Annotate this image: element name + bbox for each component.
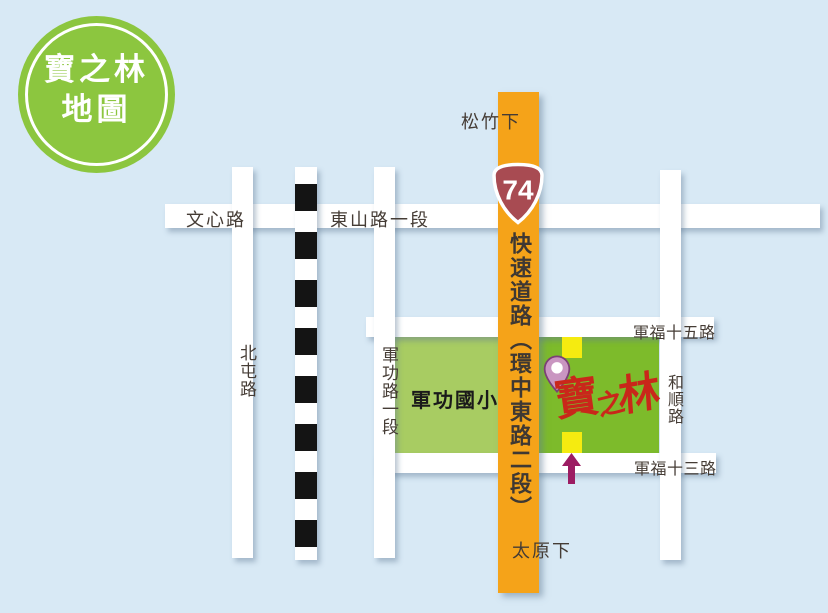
expressway-name-label: 快速道路（環中東路二段） bbox=[508, 232, 530, 520]
label-wenxin-rd: 文心路 bbox=[186, 206, 246, 232]
direction-arrow-icon bbox=[562, 453, 581, 484]
shield-number: 74 bbox=[502, 175, 534, 206]
badge-title-line1: 寶之林 bbox=[18, 50, 175, 90]
railway-track bbox=[295, 167, 317, 560]
label-heshun-rd: 和順路 bbox=[661, 374, 685, 425]
label-beitun-rd: 北屯路 bbox=[234, 344, 259, 398]
entrance-mark-south bbox=[562, 432, 582, 453]
road-heshun bbox=[660, 170, 681, 560]
logo-char-3: 林 bbox=[616, 356, 662, 424]
label-dongshan-rd-sec1: 東山路一段 bbox=[330, 206, 430, 232]
map-canvas: 快速道路（環中東路二段） 74 寶 之 林 文心路 東山路一段 松竹下 太原下 … bbox=[0, 0, 828, 613]
title-badge: 寶之林 地圖 bbox=[18, 16, 175, 173]
label-junfu-15-rd: 軍福十五路 bbox=[633, 319, 716, 343]
badge-title: 寶之林 地圖 bbox=[18, 50, 175, 130]
label-junfu-13-rd: 軍福十三路 bbox=[634, 455, 717, 479]
label-school: 軍功國小 bbox=[411, 384, 499, 413]
store-logo: 寶 之 林 bbox=[552, 356, 666, 430]
label-jungong-rd-sec1: 軍功路一段 bbox=[376, 346, 401, 436]
badge-title-line2: 地圖 bbox=[18, 90, 175, 130]
highway-74-shield-icon: 74 bbox=[490, 162, 546, 225]
label-exit-taiyuan: 太原下 bbox=[512, 537, 572, 563]
label-exit-songzhu: 松竹下 bbox=[461, 108, 521, 134]
